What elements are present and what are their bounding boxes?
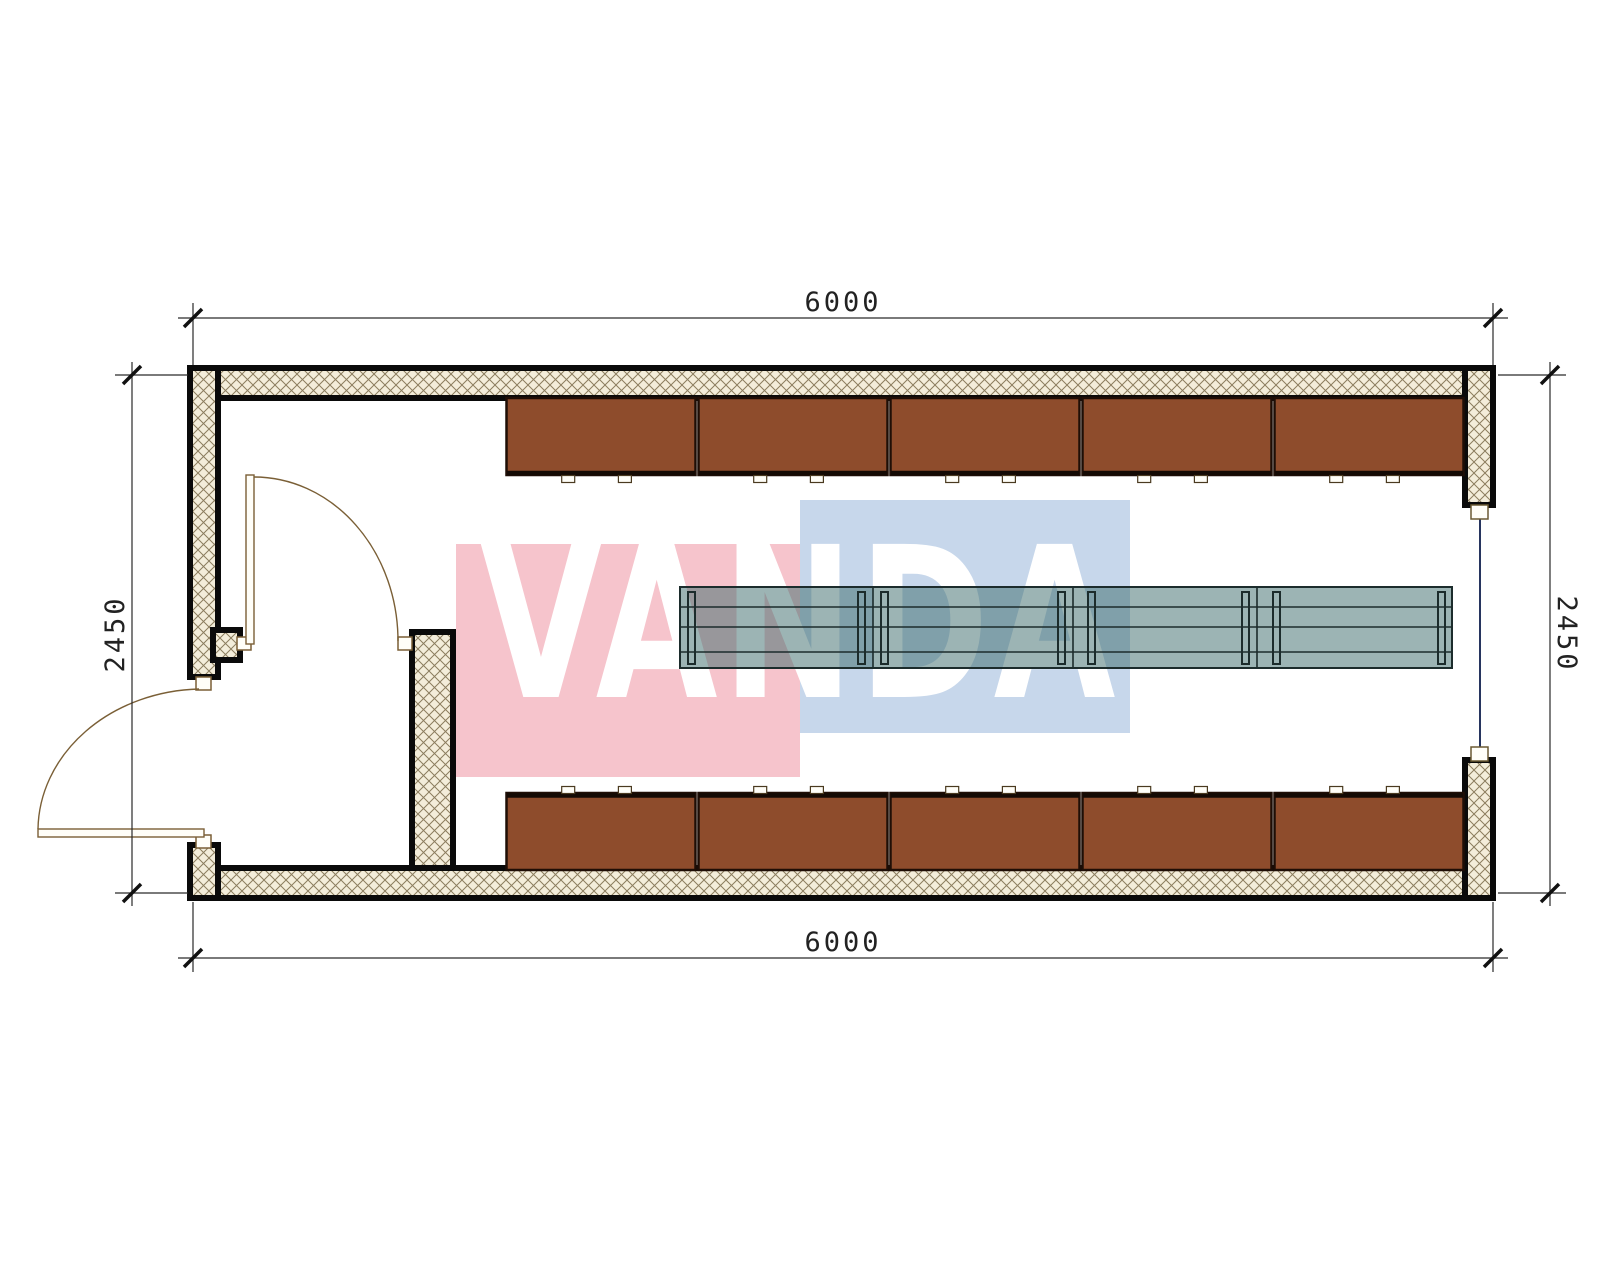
wall-door-jamb-stub bbox=[213, 630, 240, 660]
cabinet-foot bbox=[754, 787, 767, 794]
cabinet-unit bbox=[1275, 793, 1464, 870]
cabinet-foot bbox=[618, 476, 631, 483]
entrance-door-swing-arc bbox=[38, 689, 199, 829]
cabinet-foot bbox=[1138, 476, 1151, 483]
cabinet-foot bbox=[1386, 787, 1399, 794]
bottom-cabinet-row bbox=[507, 787, 1464, 871]
interior-door bbox=[237, 475, 412, 650]
interior-door-swing-arc bbox=[254, 477, 398, 641]
cabinet-unit bbox=[1275, 398, 1464, 475]
cabinet-unit bbox=[891, 793, 1080, 870]
cabinet-unit bbox=[1083, 793, 1272, 870]
cabinet-unit bbox=[507, 398, 696, 475]
cabinet-foot bbox=[754, 476, 767, 483]
cabinet-foot bbox=[810, 476, 823, 483]
cabinet-foot bbox=[562, 476, 575, 483]
cabinet-foot bbox=[1194, 787, 1207, 794]
cabinet-foot bbox=[618, 787, 631, 794]
wall-top bbox=[190, 368, 1493, 398]
wall-partition-vestibule bbox=[412, 632, 453, 868]
cabinet-unit bbox=[1083, 398, 1272, 475]
wall-left-lower-stub bbox=[190, 845, 218, 898]
window-frame-bottom bbox=[1471, 747, 1488, 761]
cabinet-foot bbox=[1002, 787, 1015, 794]
cabinet-foot bbox=[810, 787, 823, 794]
cabinet-unit bbox=[699, 398, 888, 475]
cabinet-unit bbox=[891, 398, 1080, 475]
cabinet-foot bbox=[562, 787, 575, 794]
cabinet-foot bbox=[946, 476, 959, 483]
cabinet-foot bbox=[1002, 476, 1015, 483]
interior-door-leaf bbox=[246, 475, 254, 644]
cabinet-foot bbox=[1330, 787, 1343, 794]
cabinet-foot bbox=[1386, 476, 1399, 483]
window-frame-top bbox=[1471, 505, 1488, 519]
cabinet-foot bbox=[1194, 476, 1207, 483]
entrance-door-leaf bbox=[38, 829, 204, 837]
interior-door-frame-right bbox=[398, 637, 412, 650]
cabinet-foot bbox=[946, 787, 959, 794]
wall-right-lower bbox=[1465, 760, 1493, 898]
cabinet-foot bbox=[1138, 787, 1151, 794]
entrance-door-frame-top bbox=[196, 677, 211, 690]
wall-right-upper bbox=[1465, 368, 1493, 505]
dimension-label-top: 6000 bbox=[804, 287, 881, 318]
central-table bbox=[680, 587, 1452, 668]
window-right bbox=[1471, 505, 1488, 761]
entrance-door bbox=[38, 677, 211, 848]
floor-plan-canvas: VANDA bbox=[0, 0, 1600, 1280]
top-cabinet-row bbox=[507, 398, 1464, 483]
cabinet-unit bbox=[699, 793, 888, 870]
floor-plan-page: VANDA bbox=[0, 0, 1600, 1280]
cabinet-unit bbox=[507, 793, 696, 870]
dimension-label-right: 2450 bbox=[1551, 595, 1582, 672]
wall-bottom bbox=[218, 868, 1493, 898]
cabinet-foot bbox=[1330, 476, 1343, 483]
dimension-label-bottom: 6000 bbox=[804, 927, 881, 958]
dimension-label-left: 2450 bbox=[100, 595, 131, 672]
